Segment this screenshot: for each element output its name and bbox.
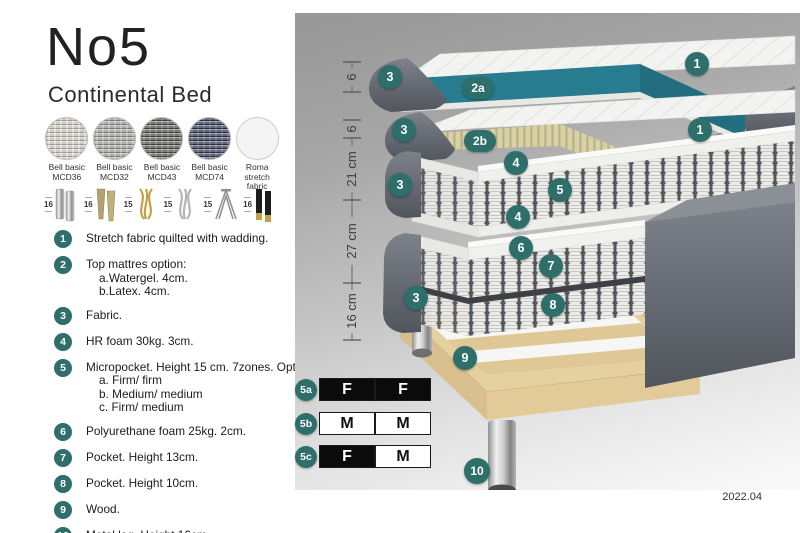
hairpin-leg-icon bbox=[213, 186, 239, 222]
dimension-label: 16 cm bbox=[344, 293, 359, 328]
fabric-name: Bell basic bbox=[96, 162, 132, 172]
firmness-cell: M bbox=[375, 445, 431, 468]
diagram-badge-pocket-13: 7 bbox=[539, 254, 563, 278]
diagram-badge-micropocket: 5 bbox=[548, 178, 572, 202]
leg-height: 16 bbox=[44, 200, 53, 209]
list-item: 4 HR foam 30kg. 3cm. bbox=[54, 333, 295, 351]
list-item: 9 Wood. bbox=[54, 501, 295, 519]
fabric-swatch: Bell basicMCD74 bbox=[187, 117, 233, 192]
fabric-name: Bell basic bbox=[191, 162, 227, 172]
item-text: Metal leg. Height 16cm. bbox=[86, 527, 210, 533]
leg-height: 15 bbox=[124, 200, 133, 209]
item-text: Fabric. bbox=[86, 307, 122, 325]
list-item: 1 Stretch fabric quilted with wadding. bbox=[54, 230, 295, 248]
version-label: 2022.04 bbox=[700, 491, 762, 503]
fabric-name: Roma bbox=[246, 162, 269, 172]
leg-height: 15 bbox=[203, 200, 212, 209]
firmness-cell: F bbox=[319, 445, 375, 468]
page-subtitle: Continental Bed bbox=[48, 82, 212, 108]
list-item: 10 Metal leg. Height 16cm. bbox=[54, 527, 295, 533]
product-sheet: No5 Continental Bed Bell basicMCD36 Bell… bbox=[0, 0, 800, 533]
item-subtext: a. Firm/ firm bbox=[99, 374, 315, 388]
dimension-label: 6 bbox=[344, 73, 359, 80]
item-number-badge: 5 bbox=[54, 359, 72, 377]
firmness-row-5a: 5a F F bbox=[295, 378, 431, 401]
square-taper-leg-icon bbox=[94, 186, 118, 222]
firmness-cell: F bbox=[375, 378, 431, 401]
leg-height: 16 bbox=[84, 200, 93, 209]
fabric-swatch-row: Bell basicMCD36 Bell basicMCD32 Bell bas… bbox=[44, 117, 280, 192]
diagram-badge-hr-foam: 4 bbox=[504, 151, 528, 175]
fabric-swatch-icon bbox=[93, 117, 136, 160]
diagram-badge-stretch-fabric: 1 bbox=[688, 118, 712, 142]
item-number-badge: 7 bbox=[54, 449, 72, 467]
leg-option: 16 bbox=[243, 186, 282, 222]
fabric-swatch: Bell basicMCD43 bbox=[139, 117, 185, 192]
chrome-cylinder-leg-icon bbox=[54, 186, 78, 222]
item-text: Top mattres option: bbox=[86, 257, 186, 271]
silver-curved-leg-icon bbox=[173, 186, 197, 222]
item-text: Polyurethane foam 25kg. 2cm. bbox=[86, 423, 246, 441]
diagram-badge-latex: 2b bbox=[464, 130, 496, 152]
diagram-badge-fabric: 3 bbox=[378, 65, 402, 89]
item-subtext: b.Latex. 4cm. bbox=[99, 285, 188, 299]
leg-height: 16 bbox=[243, 200, 252, 209]
item-text: Stretch fabric quilted with wadding. bbox=[86, 230, 268, 248]
list-item: 8 Pocket. Height 10cm. bbox=[54, 475, 295, 493]
feature-list: 1 Stretch fabric quilted with wadding. 2… bbox=[54, 230, 295, 533]
leg-option: 16 bbox=[44, 186, 83, 222]
fabric-swatch-icon bbox=[140, 117, 183, 160]
diagram-badge-pocket-10: 8 bbox=[541, 293, 565, 317]
diagram-badge-polyurethane: 6 bbox=[509, 236, 533, 260]
list-item: 3 Fabric. bbox=[54, 307, 295, 325]
item-text: HR foam 30kg. 3cm. bbox=[86, 333, 194, 351]
firmness-cell: M bbox=[375, 412, 431, 435]
diagram-badge-hr-foam: 4 bbox=[506, 205, 530, 229]
list-item: 5 Micropocket. Height 15 cm. 7zones. Opt… bbox=[54, 359, 295, 415]
fabric-swatch: Romastretch fabric bbox=[234, 117, 280, 192]
diagram-badge-wood: 9 bbox=[453, 346, 477, 370]
diagram-badge-watergel: 2a bbox=[462, 77, 494, 99]
firmness-row-5c: 5c F M bbox=[295, 445, 431, 468]
leg-options-row: 16 16 15 15 bbox=[44, 186, 282, 222]
item-text: Pocket. Height 10cm. bbox=[86, 475, 198, 493]
item-number-badge: 9 bbox=[54, 501, 72, 519]
gold-curved-leg-icon bbox=[134, 186, 158, 222]
diagram-badge-stretch-fabric: 1 bbox=[685, 52, 709, 76]
item-number-badge: 8 bbox=[54, 475, 72, 493]
firmness-cell: F bbox=[319, 378, 375, 401]
leg-height: 15 bbox=[163, 200, 172, 209]
fabric-swatch-icon bbox=[45, 117, 88, 160]
diagram-badge-fabric: 3 bbox=[392, 118, 416, 142]
item-text: Pocket. Height 13cm. bbox=[86, 449, 198, 467]
item-number-badge: 2 bbox=[54, 256, 72, 274]
diagram-badge-fabric: 3 bbox=[388, 173, 412, 197]
item-number-badge: 3 bbox=[54, 307, 72, 325]
dimension-label: 21 cm bbox=[344, 151, 359, 186]
leg-option: 15 bbox=[124, 186, 163, 222]
item-subtext: a.Watergel. 4cm. bbox=[99, 272, 188, 286]
list-item: 6 Polyurethane foam 25kg. 2cm. bbox=[54, 423, 295, 441]
list-item: 7 Pocket. Height 13cm. bbox=[54, 449, 295, 467]
option-badge: 5c bbox=[295, 446, 317, 468]
option-badge: 5b bbox=[295, 413, 317, 435]
firmness-row-5b: 5b M M bbox=[295, 412, 431, 435]
page-title: No5 bbox=[46, 16, 151, 78]
fabric-swatch-icon bbox=[236, 117, 279, 160]
item-number-badge: 6 bbox=[54, 423, 72, 441]
front-metal-leg bbox=[488, 420, 516, 490]
diagram-badge-fabric: 3 bbox=[404, 286, 428, 310]
item-text: Micropocket. Height 15 cm. 7zones. Optio… bbox=[86, 360, 315, 374]
black-gold-cylinder-leg-icon bbox=[253, 186, 275, 222]
bed-diagram-panel: 6 6 21 cm 27 cm 16 cm bbox=[295, 13, 800, 490]
list-item: 2 Top mattres option: a.Watergel. 4cm. b… bbox=[54, 256, 295, 299]
item-subtext: b. Medium/ medium bbox=[99, 388, 315, 402]
fabric-swatch: Bell basicMCD36 bbox=[44, 117, 90, 192]
leg-option: 15 bbox=[163, 186, 202, 222]
firmness-cell: M bbox=[319, 412, 375, 435]
fabric-swatch: Bell basicMCD32 bbox=[92, 117, 138, 192]
dimension-label: 6 bbox=[344, 125, 359, 132]
item-subtext: c. Firm/ medium bbox=[99, 401, 315, 415]
diagram-badge-metal-leg: 10 bbox=[464, 458, 490, 484]
dimension-label: 27 cm bbox=[344, 223, 359, 258]
fabric-name: Bell basic bbox=[144, 162, 180, 172]
fabric-swatch-icon bbox=[188, 117, 231, 160]
item-number-badge: 1 bbox=[54, 230, 72, 248]
option-badge: 5a bbox=[295, 379, 317, 401]
item-number-badge: 10 bbox=[54, 527, 72, 533]
fabric-name: Bell basic bbox=[49, 162, 85, 172]
item-number-badge: 4 bbox=[54, 333, 72, 351]
leg-option: 16 bbox=[84, 186, 123, 222]
item-text: Wood. bbox=[86, 501, 120, 519]
leg-option: 15 bbox=[203, 186, 242, 222]
